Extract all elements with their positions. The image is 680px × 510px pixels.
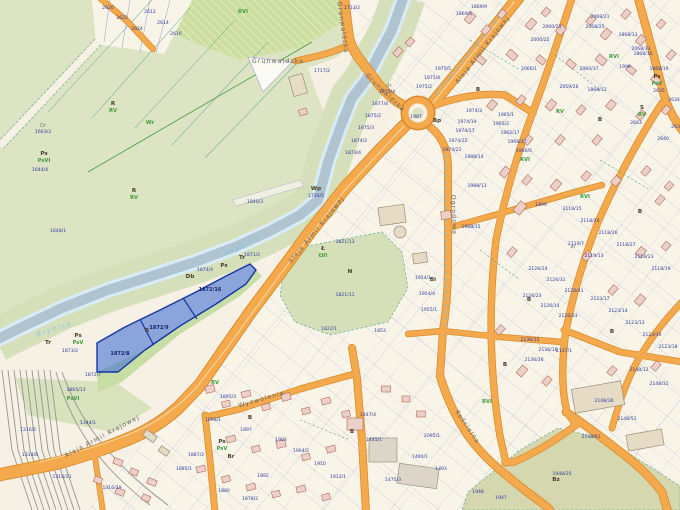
parcel-number-label: 1871/2	[244, 252, 260, 258]
parcel-number-label: 1663/3	[35, 129, 51, 135]
landuse-label: ŁVI	[318, 253, 328, 259]
parcel-number-label: 2640	[657, 136, 669, 142]
landuse-label: B	[638, 209, 642, 215]
parcel-number-label: 1644/4	[32, 167, 48, 173]
parcel-number-label: 2136/16	[538, 347, 557, 353]
parcel-number-label: 2118/15	[562, 206, 581, 212]
parcel-number-label: 1955/1	[421, 307, 437, 313]
parcel-number-label: 2643	[630, 120, 642, 126]
parcel-number-label: 1316/2	[20, 427, 36, 433]
parcel-number-label: 1868/13	[618, 32, 637, 38]
landuse-label: B	[350, 429, 354, 435]
landuse-label: Db	[186, 274, 195, 280]
landuse-label: Tr	[45, 340, 51, 346]
parcel-number-label: 2123/14	[608, 308, 627, 314]
parcel-number-label: 2148/12	[629, 367, 648, 373]
parcel-number-label: 2118/27	[616, 242, 635, 248]
parcel-number-label: 1878/2	[242, 496, 258, 502]
parcel-number-label: 1975/2	[416, 84, 432, 90]
parcel-number-label: 1865/13	[66, 387, 85, 393]
building-footprint	[417, 411, 426, 417]
roundabout	[401, 96, 436, 131]
building-footprint	[440, 210, 451, 219]
parcel-number-label: 1875/2	[365, 113, 381, 119]
parcel-number-label: 1868/19	[649, 66, 668, 72]
parcel-number-label: 1493	[435, 466, 447, 472]
parcel-number-label: 2095/1	[424, 433, 440, 439]
landuse-label: RV	[130, 195, 138, 201]
parcel-number-label: 1999	[619, 64, 631, 70]
parcel-number-label: 1899	[535, 202, 547, 208]
parcel-number-label: 1447/4	[360, 412, 376, 418]
parcel-number-label: 2635	[653, 88, 665, 94]
parcel-number-label: 1873/2	[62, 348, 78, 354]
parcel-number-label: 2123/18	[658, 344, 677, 350]
parcel-number-label: 2060/37	[579, 66, 598, 72]
landuse-label: Wp	[311, 186, 321, 192]
parcel-number-label: 2118/23	[634, 254, 653, 260]
parcel-number-label: 1475/3	[385, 477, 401, 483]
landuse-label: Bp	[433, 118, 441, 124]
landuse-label: Br	[227, 454, 234, 460]
landuse-label: PsVI	[38, 158, 51, 164]
parcel-number-label: 2000/25	[530, 37, 549, 43]
landuse-label: RV	[556, 109, 564, 115]
parcel-number-label: 1736/5	[308, 193, 324, 199]
parcel-number-label: 2637	[671, 124, 680, 130]
parcel-number-label: 1892	[257, 473, 269, 479]
parcel-number-label: 1840/3	[247, 199, 263, 205]
landuse-label: Tr	[239, 255, 245, 261]
parcel-number-label: 2624	[131, 26, 143, 32]
parcel-number-label: 2118/26	[598, 230, 617, 236]
landuse-label: PsV	[652, 81, 663, 87]
landuse-label: N	[348, 269, 353, 275]
street-name-label: Ogrodowa	[449, 195, 457, 236]
street-name-label: Grunwaldzka	[252, 58, 304, 65]
building-footprint	[402, 396, 410, 402]
parcel-number-label: 2622	[116, 15, 128, 21]
parcel-number-label: 1987	[410, 114, 422, 120]
parcel-number-label: 2126/33	[558, 313, 577, 319]
landuse-label: Ps	[40, 151, 48, 157]
parcel-number-label: 1897	[240, 427, 252, 433]
landuse-label: B	[527, 297, 531, 303]
landuse-label: Ps	[74, 333, 82, 339]
parcel-number-label: 1974/22	[448, 138, 467, 144]
parcel-number-label: 1974/3	[466, 108, 482, 114]
parcel-number-label: 1903	[275, 437, 287, 443]
landuse-label: RVI	[482, 399, 492, 405]
landuse-label: RVI	[238, 9, 248, 15]
parcel-number-label: 1880	[218, 488, 230, 494]
parcel-number-label: 2118/24	[580, 218, 599, 224]
parcel-number-label: 1885/1	[176, 466, 192, 472]
landuse-label: RV	[211, 380, 219, 386]
parcel-number-label: 1948	[472, 489, 484, 495]
parcel-number-label: 1947	[495, 495, 507, 501]
landuse-label: Bz	[552, 477, 560, 483]
landuse-label: Ps	[220, 263, 228, 269]
parcel-number-label: 1821/13	[335, 239, 354, 245]
parcel-number-label: 1965/1	[498, 112, 514, 118]
parcel-number-label: 2068/25	[585, 24, 604, 30]
parcel-number-label: 1988/13	[467, 183, 486, 189]
parcel-number-label: 1895/3	[220, 394, 236, 400]
parcel-number-label: 2123/13	[625, 320, 644, 326]
parcel-number-label: 2119/13	[584, 253, 603, 259]
parcel-number-label: 1898/1	[205, 417, 221, 423]
parcel-number-label: 2126/31	[546, 277, 565, 283]
parcel-number-label: 1974/19	[457, 119, 476, 125]
parcel-number-label: 1316/21	[52, 474, 71, 480]
landuse-label: RVI	[609, 54, 619, 60]
landuse-label: B	[503, 362, 507, 368]
parcel-number-label: 1875/3	[358, 125, 374, 131]
parcel-number-label: 1975/5	[435, 66, 451, 72]
parcel-number-label: 2136/15	[520, 337, 539, 343]
parcel-number-label: 2616	[170, 31, 182, 37]
parcel-number-label: 1869/5	[456, 11, 472, 17]
building-footprint	[382, 386, 391, 392]
selected-parcel-number-label: 1872/16	[199, 287, 222, 293]
parcel-number-label: 1912/1	[330, 474, 346, 480]
landuse-label: Ps	[218, 439, 226, 445]
parcel-number-label: 1874/4	[197, 267, 213, 273]
large-building-footprint	[412, 252, 427, 264]
round-building	[394, 226, 406, 238]
parcel-number-label: 1873/4	[345, 150, 361, 156]
parcel-number-label: 1853	[374, 328, 386, 334]
landuse-label: R	[111, 101, 116, 107]
parcel-number-label: 2137/1	[556, 348, 572, 354]
landuse-label: B	[248, 415, 252, 421]
parcel-number-label: 1648/1	[50, 228, 66, 234]
parcel-number-label: 2059/26	[559, 84, 578, 90]
landuse-label: PsVI	[67, 396, 80, 402]
parcel-number-label: 1954/4	[419, 291, 435, 297]
parcel-number-label: 2634	[668, 97, 680, 103]
parcel-number-label: 1872/7	[85, 372, 101, 378]
parcel-number-label: 1869/9	[471, 4, 487, 10]
cadastral-map: 1644/41648/11663/31840/31736/51871/21874…	[0, 0, 680, 510]
parcel-number-label: 1904/2	[293, 448, 309, 454]
parcel-number-label: 1717/2	[314, 68, 330, 74]
parcel-number-label: 2126/24	[528, 266, 547, 272]
parcel-number-label: 2148/51	[617, 416, 636, 422]
parcel-number-label: 1910	[314, 461, 326, 467]
parcel-number-label: 2148/61	[581, 434, 600, 440]
map-canvas[interactable]: 1644/41648/11663/31840/31736/51871/21874…	[0, 0, 680, 510]
parcel-number-label: 1445/1	[366, 437, 382, 443]
landuse-label: PsV	[73, 340, 84, 346]
parcel-number-label: 2126/41	[564, 288, 583, 294]
parcel-number-label: 2066/1	[521, 66, 537, 72]
parcel-number-label: 2068/33	[631, 46, 650, 52]
landuse-label: B	[610, 329, 614, 335]
parcel-number-label: 1874/2	[351, 138, 367, 144]
parcel-number-label: 1822/1	[321, 326, 337, 332]
landuse-label: PsV	[217, 446, 228, 452]
parcel-number-label: 1713/2	[344, 5, 360, 11]
parcel-number-label: 2148/36	[594, 398, 613, 404]
landuse-label: RV	[109, 108, 117, 114]
selected-parcel-number-label: 1872/8	[110, 351, 130, 357]
parcel-number-label: 1954/1	[415, 275, 431, 281]
landuse-label: Wr	[146, 120, 155, 126]
parcel-number-label: 2126/14	[540, 303, 559, 309]
landuse-label: Ł	[320, 246, 325, 252]
landuse-label: S	[640, 105, 644, 111]
parcel-number-label: 1974/17	[455, 128, 474, 134]
parcel-number-label: 1988/15	[461, 224, 480, 230]
parcel-number-label: 1988/14	[464, 154, 483, 160]
parcel-number-label: 1887/2	[188, 452, 204, 458]
landuse-label: Bi	[430, 277, 436, 283]
parcel-number-label: 2136/26	[524, 357, 543, 363]
landuse-label: B	[476, 87, 480, 93]
parcel-number-label: 1821/11	[335, 292, 354, 298]
parcel-number-label: 1966/5	[516, 148, 532, 154]
parcel-number-label: 1965/17	[500, 130, 519, 136]
parcel-number-label: 1316/19	[102, 485, 121, 491]
landuse-label: RV	[638, 112, 646, 118]
parcel-number-label: 2000/21	[542, 24, 561, 30]
selected-parcel-number-label: 1872/9	[149, 325, 169, 331]
parcel-number-label: 1965/2	[493, 121, 509, 127]
parcel-number-label: 2148/31	[649, 381, 668, 387]
parcel-number-label: 1974/21	[442, 147, 461, 153]
landuse-label: Ps	[653, 74, 661, 80]
parcel-number-label: 1490/1	[412, 454, 428, 460]
parcel-number-label: 1975/4	[424, 75, 440, 81]
parcel-number-label: 1877/4	[372, 101, 388, 107]
parcel-number-label: 1344/1	[80, 420, 96, 426]
landuse-label: B	[598, 117, 602, 123]
parcel-number-label: 2614	[157, 20, 169, 26]
parcel-number-label: 2068/21	[590, 14, 609, 20]
parcel-number-label: 2612	[144, 9, 156, 15]
landuse-label: RVI	[580, 194, 590, 200]
parcel-number-label: 2123/17	[590, 296, 609, 302]
parcel-number-label: 2126/23	[522, 293, 541, 299]
parcel-number-label: 2123/16	[642, 332, 661, 338]
landuse-label: R	[132, 188, 137, 194]
large-building-footprint	[378, 204, 406, 225]
parcel-number-label: 2620	[102, 5, 114, 11]
parcel-number-label: 2118/19	[651, 266, 670, 272]
landuse-label: RVI	[520, 157, 530, 163]
parcel-number-label: 1966/27	[507, 139, 526, 145]
parcel-number-label: 1868/12	[587, 87, 606, 93]
landuse-label: Dr	[40, 123, 47, 129]
parcel-number-label: 1314/6	[22, 452, 38, 458]
